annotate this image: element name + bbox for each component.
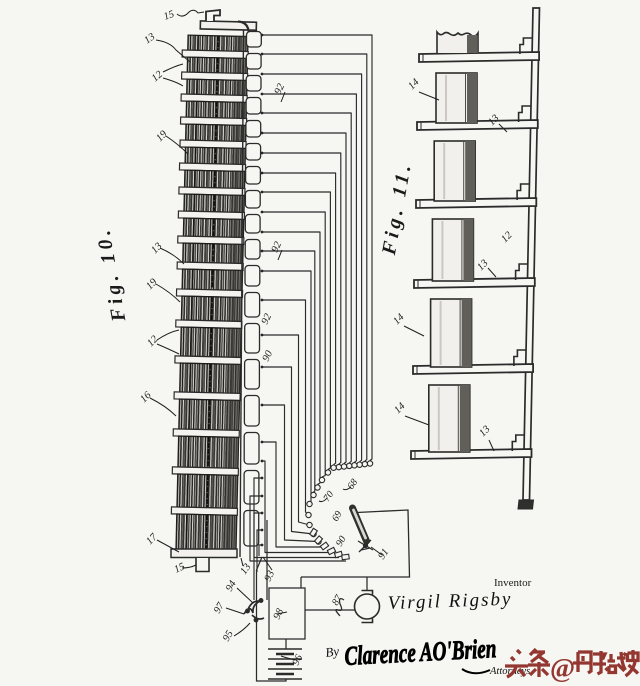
svg-text:By: By: [324, 643, 340, 660]
svg-text:Virgil Rigsby: Virgil Rigsby: [387, 589, 512, 614]
svg-text:@: @: [550, 653, 575, 683]
svg-text:Inventor: Inventor: [494, 577, 532, 589]
